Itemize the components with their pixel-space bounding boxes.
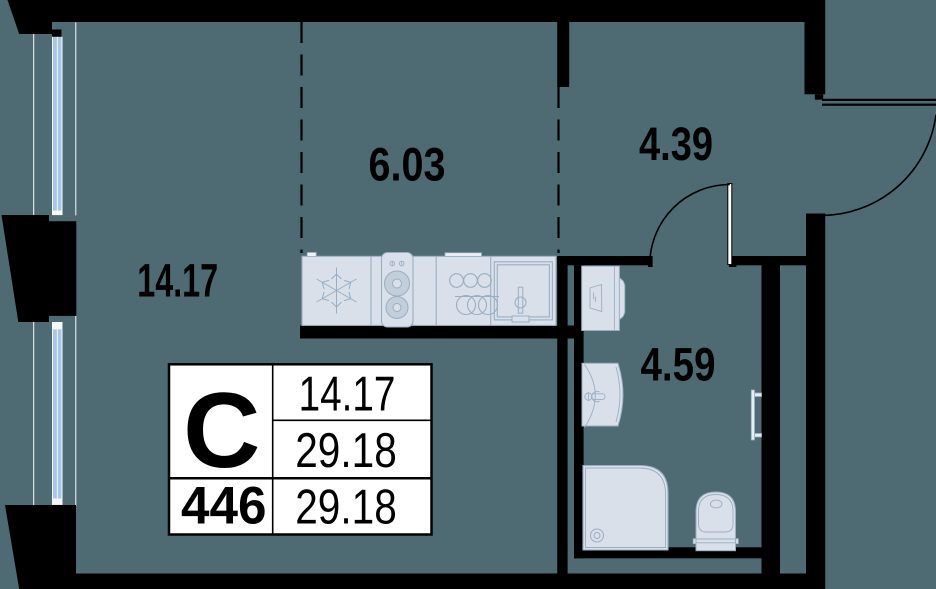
svg-text:14.17: 14.17 <box>137 254 218 307</box>
svg-text:29.18: 29.18 <box>295 481 397 535</box>
svg-text:6.03: 6.03 <box>369 138 446 191</box>
svg-text:4.59: 4.59 <box>641 338 716 391</box>
svg-text:446: 446 <box>181 477 267 536</box>
svg-text:29.18: 29.18 <box>295 424 397 478</box>
svg-text:4.39: 4.39 <box>639 117 713 170</box>
svg-text:14.17: 14.17 <box>299 368 396 422</box>
svg-text:С: С <box>183 370 260 490</box>
